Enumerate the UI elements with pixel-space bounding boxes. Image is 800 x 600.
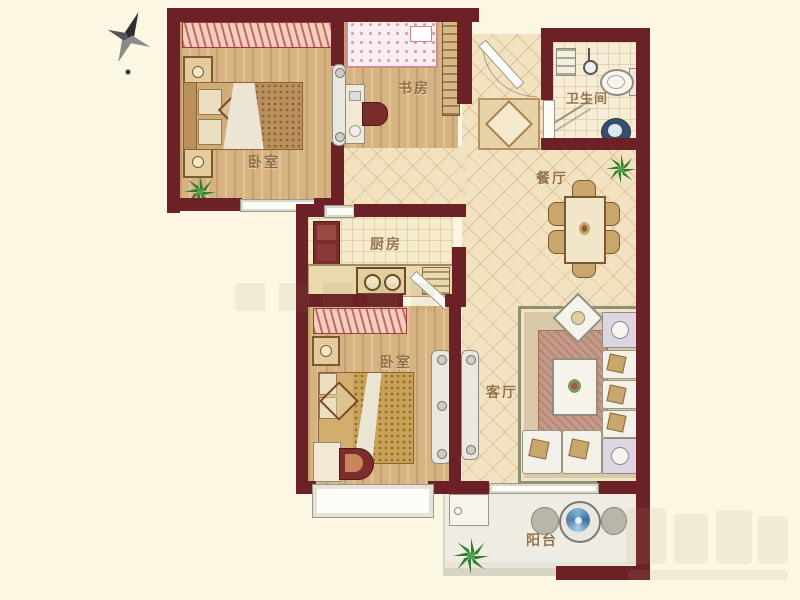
compass-icon: [100, 6, 156, 86]
sofa-pillow: [528, 438, 549, 459]
window: [324, 205, 356, 218]
balcony-cabinet: [449, 494, 489, 526]
wall: [541, 138, 648, 150]
dressing-stool: [339, 448, 374, 480]
wall: [167, 8, 479, 22]
sofa-pillow: [606, 412, 626, 432]
bedroom1-door: [332, 64, 346, 146]
desk-item: [349, 91, 361, 101]
wall: [443, 481, 489, 494]
stool-cushion: [345, 454, 363, 472]
sink-bowl: [608, 124, 622, 137]
sofa-corner-table: [602, 312, 638, 348]
bedroom2-window-curtain: [313, 308, 407, 334]
room-label-bedroom1: 卧室: [248, 152, 280, 172]
room-label-living: 客厅: [486, 382, 518, 402]
washing-machine-icon: [559, 501, 601, 543]
wall: [296, 294, 308, 494]
room-label-balcony: 阳台: [526, 530, 558, 550]
sofa-corner-table: [602, 438, 638, 474]
table-centerpiece: [579, 222, 590, 235]
sofa-pillow: [606, 353, 626, 373]
toilet-bowl: [607, 75, 625, 89]
room-label-dining: 餐厅: [536, 168, 568, 188]
wall: [636, 28, 650, 486]
wardrobe-sliding-doors: [431, 350, 451, 464]
washer-hub: [575, 517, 582, 524]
fridge-icon: [313, 221, 340, 265]
fridge-door: [317, 225, 336, 240]
bedroom1-window-curtain: [182, 22, 332, 48]
bed-pillow: [198, 119, 222, 145]
cabinet-handle: [454, 507, 462, 515]
study-chair: [362, 102, 388, 126]
wall: [541, 28, 650, 42]
towel-rack-icon: [556, 48, 576, 76]
shower-head-icon: [583, 60, 598, 75]
nightstand-icon: [312, 336, 340, 366]
sofa-pillow: [568, 438, 589, 459]
wall: [331, 142, 344, 212]
room-label-kitchen: 厨房: [370, 234, 402, 254]
room-label-bathroom: 卫生间: [566, 88, 608, 107]
bay-window: [312, 484, 434, 518]
desk-item: [349, 125, 361, 137]
floor-plan-canvas: 卧室 书房 卫生间 餐厅 厨房: [0, 0, 800, 600]
wall: [449, 294, 461, 494]
tv-cabinet: [461, 350, 479, 460]
room-label-bedroom2: 卧室: [380, 352, 412, 372]
wall: [167, 8, 180, 213]
watermark: [618, 500, 796, 592]
room-label-study: 书房: [398, 78, 430, 98]
hallway-floor: [336, 146, 466, 210]
dressing-table: [313, 442, 341, 482]
bed-headboard: [184, 83, 197, 149]
wall: [457, 8, 472, 104]
fridge-door: [317, 244, 336, 261]
medallion-diamond: [485, 100, 533, 148]
wall: [354, 204, 466, 217]
balcony-sliding-door: [489, 483, 599, 494]
table-flowers: [567, 378, 582, 394]
watermark: [235, 283, 435, 311]
bathroom-door: [543, 100, 555, 140]
wall: [331, 8, 344, 66]
entry-floor-medallion: [478, 98, 540, 150]
sofa-pillow: [606, 384, 626, 404]
wall: [167, 198, 242, 211]
dining-table: [564, 196, 606, 264]
coffee-table: [552, 358, 598, 416]
bed-icon: [183, 82, 303, 150]
study-bed-pillow: [410, 26, 432, 42]
wall: [541, 28, 553, 100]
nightstand-icon: [183, 146, 213, 178]
table-item: [568, 308, 588, 328]
plant-icon: [452, 538, 490, 574]
plant-icon: [606, 154, 636, 184]
study-bed: [346, 18, 438, 68]
